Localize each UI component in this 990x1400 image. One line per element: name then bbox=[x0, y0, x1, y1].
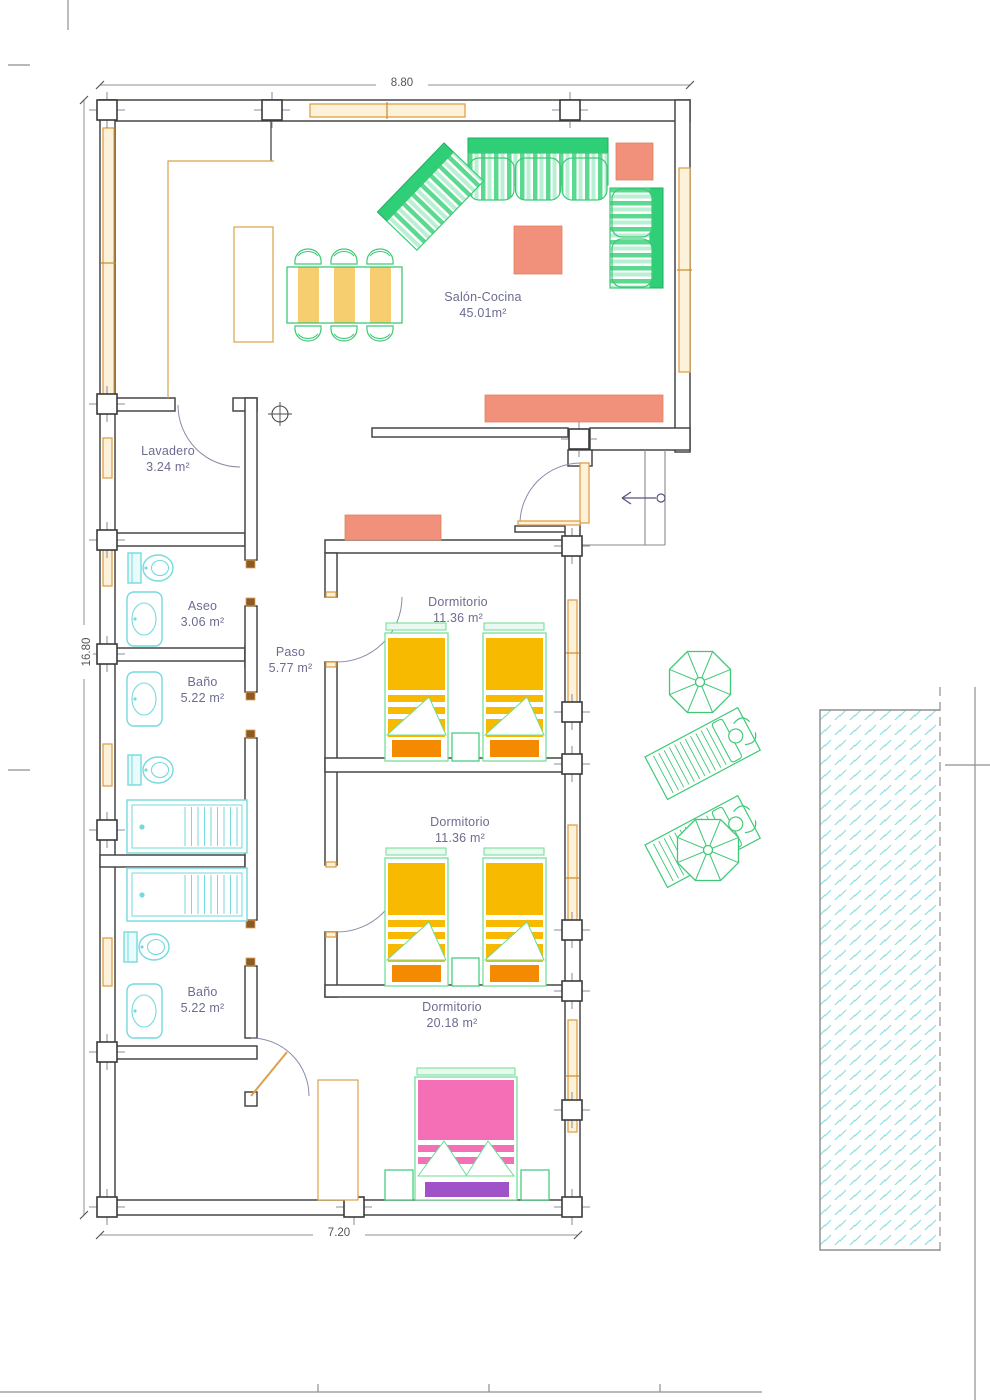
toilet-bano2 bbox=[124, 932, 169, 962]
tub-bano1 bbox=[127, 800, 247, 853]
room-label-dorm2: Dormitorio 11.36 m² bbox=[400, 814, 520, 846]
sofa-vertical bbox=[610, 188, 663, 288]
parasol-icon bbox=[670, 652, 731, 713]
room-label-bano2: Baño 5.22 m² bbox=[150, 984, 255, 1016]
room-area: 20.18 m² bbox=[392, 1015, 512, 1031]
twin-bed bbox=[483, 623, 546, 761]
side-table bbox=[616, 143, 653, 180]
entry-door-leaf bbox=[580, 463, 589, 523]
room-name: Dormitorio bbox=[398, 594, 518, 610]
dimension-top: 8.80 bbox=[376, 77, 428, 89]
twin-bed bbox=[385, 623, 448, 761]
room-name: Dormitorio bbox=[400, 814, 520, 830]
tub-bano2 bbox=[127, 868, 247, 921]
floorplan-drawing bbox=[0, 0, 990, 1400]
room-label-aseo: Aseo 3.06 m² bbox=[150, 598, 255, 630]
room-area: 11.36 m² bbox=[398, 610, 518, 626]
double-bed bbox=[415, 1068, 517, 1200]
floorplan-sheet: Salón-Cocina 45.01m² Lavadero 3.24 m² As… bbox=[0, 0, 990, 1400]
room-area: 3.24 m² bbox=[113, 459, 223, 475]
kitchen-island bbox=[234, 227, 273, 342]
dimension-left: 16.80 bbox=[81, 625, 93, 679]
room-label-dorm3: Dormitorio 20.18 m² bbox=[392, 999, 512, 1031]
room-name: Lavadero bbox=[113, 443, 223, 459]
room-area: 5.77 m² bbox=[248, 660, 333, 676]
room-label-bano1: Baño 5.22 m² bbox=[150, 674, 255, 706]
coffee-table bbox=[514, 226, 562, 274]
room-name: Aseo bbox=[150, 598, 255, 614]
room-area: 11.36 m² bbox=[400, 830, 520, 846]
sun-lounger bbox=[645, 706, 764, 800]
parasol-icon bbox=[678, 820, 739, 881]
room-label-dorm1: Dormitorio 11.36 m² bbox=[398, 594, 518, 626]
room-area: 5.22 m² bbox=[150, 1000, 255, 1016]
bedroom-furniture bbox=[318, 623, 549, 1200]
room-area: 3.06 m² bbox=[150, 614, 255, 630]
room-name: Salón-Cocina bbox=[403, 289, 563, 305]
nightstand bbox=[452, 733, 479, 761]
hall-cabinet bbox=[345, 515, 441, 540]
room-label-lavadero: Lavadero 3.24 m² bbox=[113, 443, 223, 475]
kitchen-counter-line bbox=[168, 161, 274, 398]
dining-set bbox=[287, 249, 402, 341]
room-name: Baño bbox=[150, 674, 255, 690]
kitchen-counter bbox=[485, 395, 663, 422]
wardrobe bbox=[318, 1080, 358, 1200]
room-area: 5.22 m² bbox=[150, 690, 255, 706]
nightstand bbox=[521, 1170, 549, 1200]
room-area: 45.01m² bbox=[403, 305, 563, 321]
swimming-pool bbox=[820, 710, 940, 1250]
toilet-bano1 bbox=[128, 755, 173, 785]
entry-arrow-icon bbox=[622, 492, 665, 504]
nightstand bbox=[452, 958, 479, 986]
room-name: Paso bbox=[248, 644, 333, 660]
outdoor-loungers bbox=[645, 652, 764, 888]
room-name: Baño bbox=[150, 984, 255, 1000]
door-arc-entry bbox=[520, 463, 581, 524]
dimension-bottom: 7.20 bbox=[313, 1227, 365, 1239]
sofa-horizontal bbox=[468, 138, 608, 200]
twin-bed bbox=[385, 848, 448, 986]
room-label-salon: Salón-Cocina 45.01m² bbox=[403, 289, 563, 321]
utility-mark-icon bbox=[268, 402, 292, 426]
nightstand bbox=[385, 1170, 413, 1200]
door-arc-dorm3 bbox=[251, 1038, 309, 1096]
room-label-paso: Paso 5.77 m² bbox=[248, 644, 333, 676]
toilet-aseo bbox=[128, 553, 173, 583]
twin-bed bbox=[483, 848, 546, 986]
room-name: Dormitorio bbox=[392, 999, 512, 1015]
